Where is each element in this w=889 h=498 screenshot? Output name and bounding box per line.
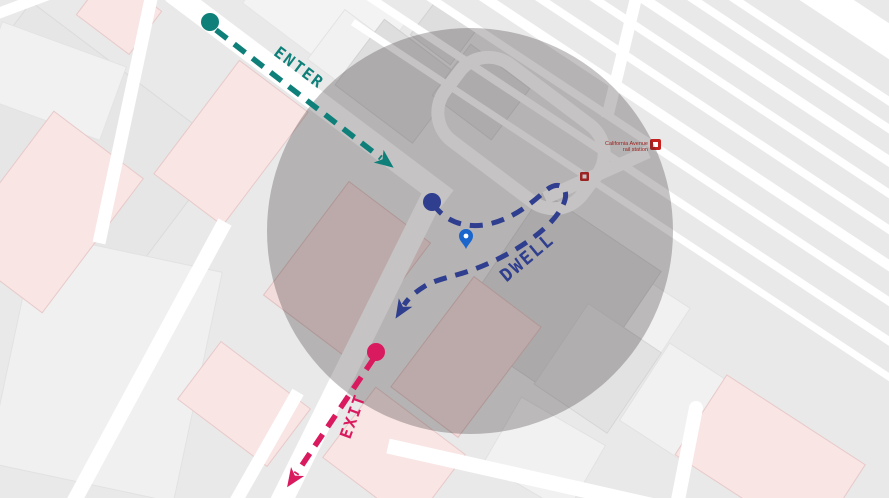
enter-start-dot [201,13,219,31]
exit-start-dot [367,343,385,361]
map-pin-hole [464,234,469,239]
dwell-start-dot [423,193,441,211]
map-canvas[interactable]: California Avenue rail station ENTER DWE… [0,0,889,498]
